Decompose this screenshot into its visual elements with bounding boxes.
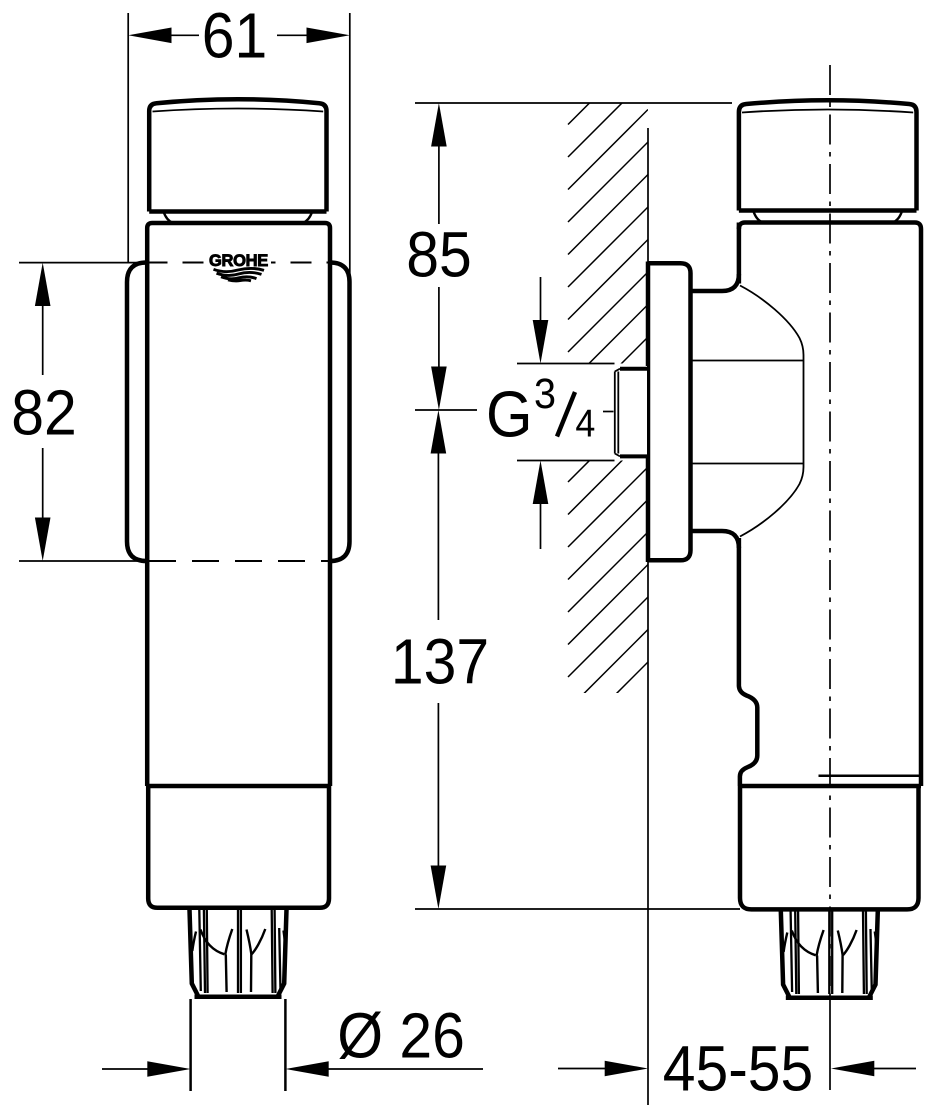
svg-text:Ø 26: Ø 26 bbox=[337, 1000, 465, 1072]
svg-text:85: 85 bbox=[406, 219, 471, 291]
svg-text:137: 137 bbox=[391, 626, 489, 698]
svg-text:4: 4 bbox=[575, 401, 595, 445]
svg-text:GROHE: GROHE bbox=[209, 252, 268, 270]
svg-text:61: 61 bbox=[202, 0, 267, 72]
svg-text:3: 3 bbox=[534, 369, 556, 417]
svg-text:45-55: 45-55 bbox=[663, 1033, 814, 1105]
svg-text:82: 82 bbox=[11, 377, 76, 449]
svg-text:G: G bbox=[486, 378, 533, 451]
